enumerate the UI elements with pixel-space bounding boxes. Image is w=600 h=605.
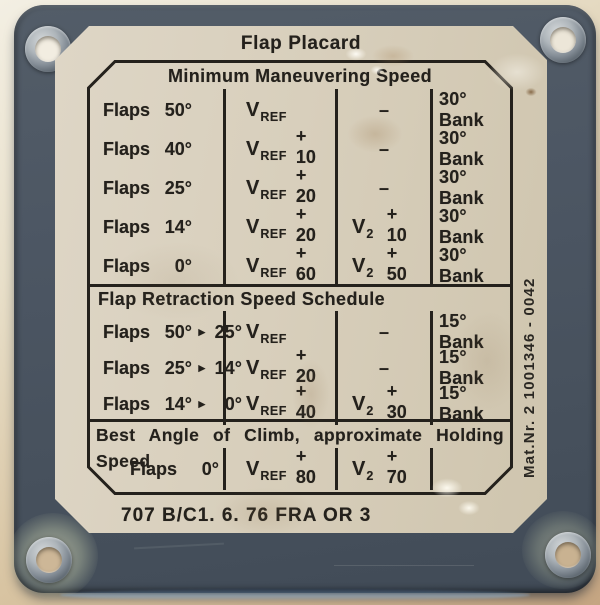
vref-cell: VREF+ 60 [223, 245, 335, 287]
vref-cell: VREF+ 20 [223, 167, 335, 209]
dash-placeholder: – [379, 322, 389, 343]
table-row: Flaps25°►14°VREF+ 20–15° Bank [90, 347, 510, 383]
v-subscript: REF [260, 266, 287, 280]
flaps-cell: Flaps40° [90, 128, 223, 170]
dash-placeholder: – [379, 100, 389, 121]
flaps-word: Flaps [103, 394, 150, 415]
flaps-setting: 0° [179, 459, 219, 480]
flaps-word: Flaps [103, 358, 150, 379]
v2-cell: – [335, 89, 430, 131]
flaps-cell: Flaps14°►0° [90, 383, 223, 425]
bank-cell: 30° Bank [430, 206, 510, 248]
v-symbol: V [352, 394, 365, 414]
speed-increment: + 20 [296, 204, 335, 246]
v-symbol: V [352, 217, 365, 237]
flaps-cell: Flaps50° [90, 89, 223, 131]
screw-hole-bore [36, 547, 62, 573]
table-row: Flaps14°►0°VREF+ 40V2+ 3015° Bank [90, 383, 510, 419]
v-subscript: REF [260, 332, 287, 346]
v-symbol: V [352, 459, 365, 479]
flaps-setting: 14° [152, 394, 192, 415]
arrow-right-icon: ► [196, 325, 208, 339]
v-subscript: REF [260, 110, 287, 124]
flaps-cell: Flaps25° [90, 167, 223, 209]
flaps-setting: 25° [152, 358, 192, 379]
type-code-text: 707 B/C1. 6. 76 FRA OR 3 [121, 505, 371, 527]
flaps-word: Flaps [103, 178, 150, 199]
v2-cell: V2+ 10 [335, 206, 430, 248]
flaps-setting: 0° [152, 256, 192, 277]
scratch-mark [334, 565, 474, 566]
v-subscript: 2 [366, 469, 373, 483]
dash-placeholder: – [379, 139, 389, 160]
section-header: Flap Retraction Speed Schedule [90, 287, 510, 311]
speed-increment: + 50 [387, 243, 430, 285]
speed-table: Minimum Maneuvering SpeedFlaps50°VREF–30… [90, 63, 510, 492]
v2-cell: – [335, 167, 430, 209]
v-symbol: V [246, 217, 259, 237]
table-row: Flaps40°VREF+ 10–30° Bank [90, 128, 510, 167]
v-subscript: REF [260, 188, 287, 202]
scan-background: Flap Placard Minimum Maneuvering SpeedFl… [0, 0, 600, 605]
speed-increment: + 10 [296, 126, 335, 168]
bank-angle-label: 30° Bank [439, 89, 510, 131]
flaps-setting: 14° [152, 217, 192, 238]
placard-title: Flap Placard [55, 33, 547, 55]
v-subscript: 2 [366, 227, 373, 241]
speed-increment: + 70 [387, 446, 430, 488]
bank-cell: 30° Bank [430, 128, 510, 170]
material-number-text: Mat.Nr. 2 1001346 - 0042 [521, 174, 545, 478]
flaps-word: Flaps [130, 459, 177, 480]
v-symbol: V [246, 139, 259, 159]
scratch-mark [134, 543, 224, 550]
v-subscript: 2 [366, 266, 373, 280]
screw-hole-bottom-left [26, 537, 72, 583]
section-header: Minimum Maneuvering Speed [90, 63, 510, 89]
v-subscript: REF [260, 469, 287, 483]
arrow-right-icon: ► [196, 361, 208, 375]
table-row: Flaps14°VREF+ 20V2+ 1030° Bank [90, 206, 510, 245]
bank-cell: 30° Bank [430, 89, 510, 131]
v2-cell: V2+ 70 [335, 448, 430, 490]
v-symbol: V [246, 358, 259, 378]
speed-increment: + 60 [296, 243, 335, 285]
bank-cell: 30° Bank [430, 245, 510, 287]
v-subscript: 2 [366, 404, 373, 418]
vref-cell: VREF+ 40 [223, 383, 335, 425]
bank-angle-label: 30° Bank [439, 206, 510, 248]
flaps-setting: 50° [152, 100, 192, 121]
v-subscript: REF [260, 404, 287, 418]
vref-cell: VREF+ 80 [223, 448, 335, 490]
dash-placeholder: – [379, 178, 389, 199]
flaps-cell: Flaps0° [90, 245, 223, 287]
vref-cell: VREF+ 10 [223, 128, 335, 170]
flaps-cell: Flaps0° [90, 448, 223, 490]
screw-hole-top-right [540, 17, 586, 63]
speed-increment: + 10 [387, 204, 430, 246]
bank-angle-label: 15° Bank [439, 383, 510, 425]
v-symbol: V [246, 459, 259, 479]
flaps-setting: 40° [152, 139, 192, 160]
bank-angle-label: 30° Bank [439, 167, 510, 209]
flaps-word: Flaps [103, 322, 150, 343]
flaps-setting: 50° [152, 322, 192, 343]
table-row: Flaps50°►25°VREF–15° Bank [90, 311, 510, 347]
bank-angle-label: 30° Bank [439, 128, 510, 170]
screw-hole-bore [555, 542, 581, 568]
placard-face: Flap Placard Minimum Maneuvering SpeedFl… [55, 26, 547, 533]
flaps-word: Flaps [103, 100, 150, 121]
table-row: Flaps0°VREF+ 80V2+ 70 [90, 448, 510, 488]
speed-increment: + 20 [296, 165, 335, 207]
speed-increment: + 30 [387, 381, 430, 423]
dash-placeholder: – [379, 358, 389, 379]
flaps-word: Flaps [103, 139, 150, 160]
speed-increment: + 80 [296, 446, 335, 488]
bank-cell: 15° Bank [430, 383, 510, 425]
scan-edge-reflection [60, 589, 530, 601]
screw-hole-bore [550, 27, 576, 53]
flaps-word: Flaps [103, 217, 150, 238]
v-subscript: REF [260, 368, 287, 382]
bank-cell [430, 448, 510, 490]
section-header: Best Angle of Climb, approximate Holding… [90, 422, 510, 448]
flaps-cell: Flaps14° [90, 206, 223, 248]
v-symbol: V [246, 178, 259, 198]
flaps-word: Flaps [103, 256, 150, 277]
table-row: Flaps50°VREF–30° Bank [90, 89, 510, 128]
speed-increment: + 40 [296, 381, 335, 423]
v2-cell: V2+ 30 [335, 383, 430, 425]
bank-angle-label: 30° Bank [439, 245, 510, 287]
table-row: Flaps0°VREF+ 60V2+ 5030° Bank [90, 245, 510, 284]
v2-cell: V2+ 50 [335, 245, 430, 287]
v-symbol: V [246, 394, 259, 414]
v-subscript: REF [260, 227, 287, 241]
vref-cell: VREF+ 20 [223, 206, 335, 248]
screw-hole-bottom-right [545, 532, 591, 578]
v-subscript: REF [260, 149, 287, 163]
v-symbol: V [246, 256, 259, 276]
table-row: Flaps25°VREF+ 20–30° Bank [90, 167, 510, 206]
v2-cell: – [335, 128, 430, 170]
arrow-right-icon: ► [196, 397, 208, 411]
vref-cell: VREF [223, 89, 335, 131]
v-symbol: V [246, 100, 259, 120]
v-symbol: V [246, 322, 259, 342]
flaps-setting: 25° [152, 178, 192, 199]
bank-cell: 30° Bank [430, 167, 510, 209]
v-symbol: V [352, 256, 365, 276]
